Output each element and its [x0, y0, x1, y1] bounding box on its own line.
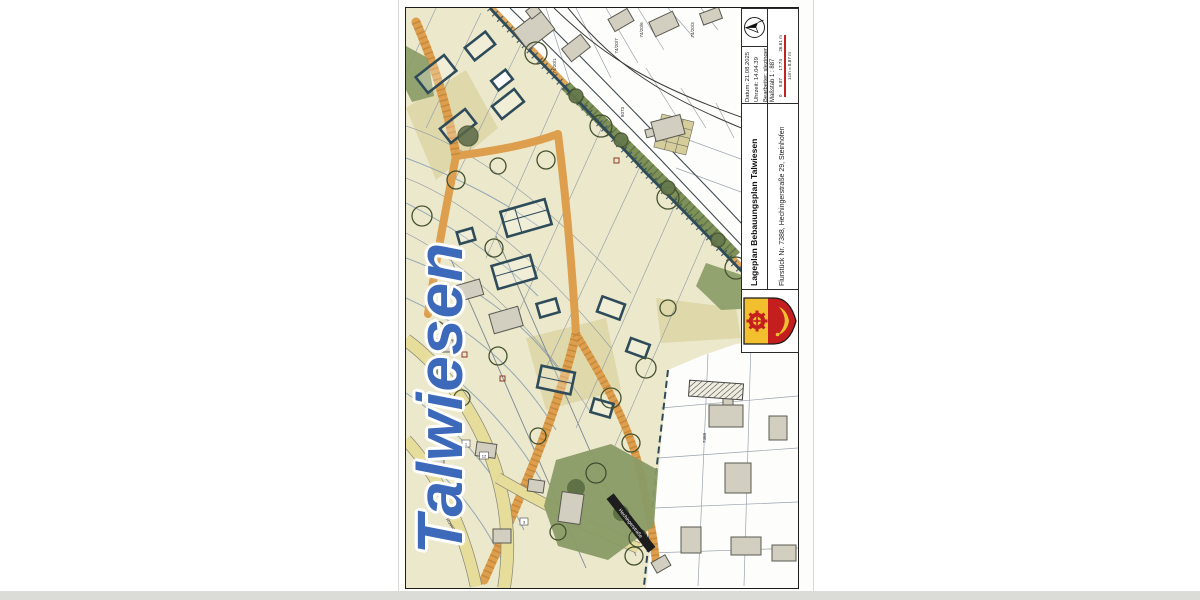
parcel-label: 7388	[702, 432, 707, 443]
plan-subtitle-cell: Flurstück Nr. 7388, Hechingerstraße 29, …	[767, 103, 799, 290]
scale-tick: 8.87	[778, 78, 783, 87]
datum-text: Datum: 21.08.2025	[744, 47, 753, 102]
plan-title-cell: Lageplan Bebauungsplan Talwiesen	[741, 103, 768, 290]
scale-cell: Maßstab 1 : 887 0 8.87 17.74 26.61 m 1cm…	[767, 8, 799, 104]
scale-ticks: 0 8.87 17.74 26.61 m	[778, 35, 783, 97]
scale-note: 1cm = 8.87 m	[787, 35, 792, 97]
gear-icon	[747, 311, 768, 332]
scan-edge-strip	[0, 591, 1200, 600]
date-editor-cell: Datum: 21.08.2025 Uhrzeit: 14.04.39 Bear…	[741, 46, 768, 104]
parcel-label: 74/20/6	[639, 22, 644, 38]
parcel-label: 74/20/3	[690, 22, 695, 38]
scale-bar-line	[784, 35, 787, 97]
hatched-building	[689, 380, 744, 400]
plan-title: Lageplan Bebauungsplan Talwiesen	[742, 104, 767, 290]
scan-background: 74/20/1 74/20/7 74/20/6 74/20/3 8073 738…	[0, 0, 1200, 600]
north-arrow-icon	[742, 9, 767, 46]
plan-name-watermark: Talwiesen	[403, 188, 481, 592]
parcel-label: 8073	[620, 106, 625, 117]
coat-of-arms-icon	[742, 290, 798, 352]
coat-of-arms-cell	[741, 289, 799, 353]
scale-tick: 17.74	[778, 59, 783, 71]
massstab-text: Maßstab 1 : 887	[768, 9, 776, 104]
scale-bar: 0 8.87 17.74 26.61 m 1cm = 8.87 m	[778, 15, 792, 97]
uhrzeit-text: Uhrzeit: 14.04.39	[753, 47, 762, 102]
document-page: 74/20/1 74/20/7 74/20/6 74/20/3 8073 738…	[398, 0, 814, 592]
parcel-label: 74/20/7	[614, 38, 619, 54]
plan-subtitle: Flurstück Nr. 7388, Hechingerstraße 29, …	[768, 104, 798, 290]
parcel-label: 74/20/1	[552, 58, 557, 74]
scale-tick: 26.61 m	[778, 35, 783, 52]
scale-tick: 0	[778, 94, 783, 97]
house-number: 12	[482, 454, 487, 459]
north-arrow-cell	[741, 8, 768, 47]
